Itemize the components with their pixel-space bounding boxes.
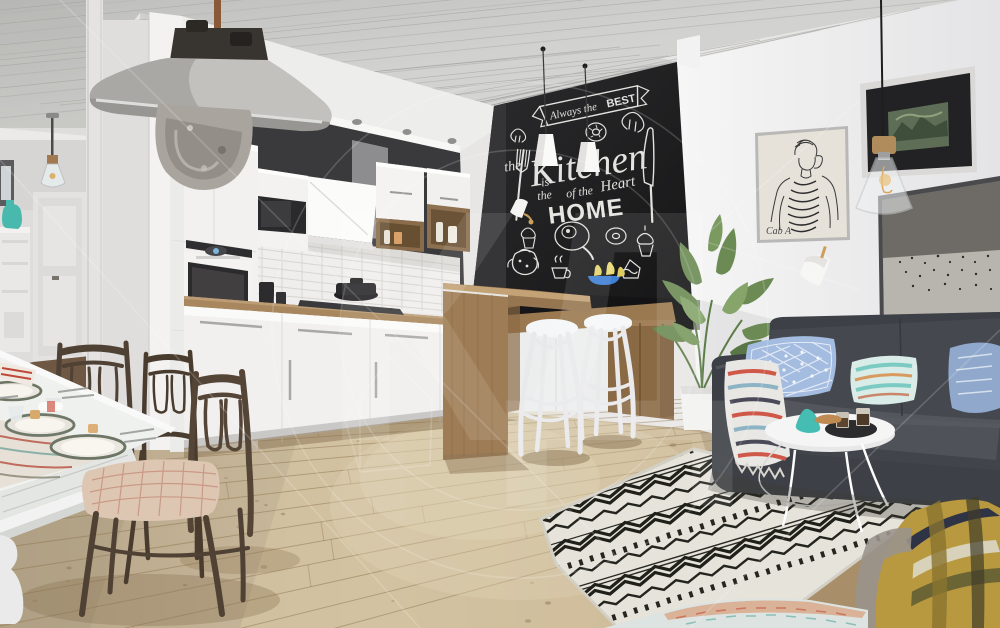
svg-text:КД: КД [320, 141, 735, 510]
svg-text:Cab A: Cab A [766, 226, 792, 237]
